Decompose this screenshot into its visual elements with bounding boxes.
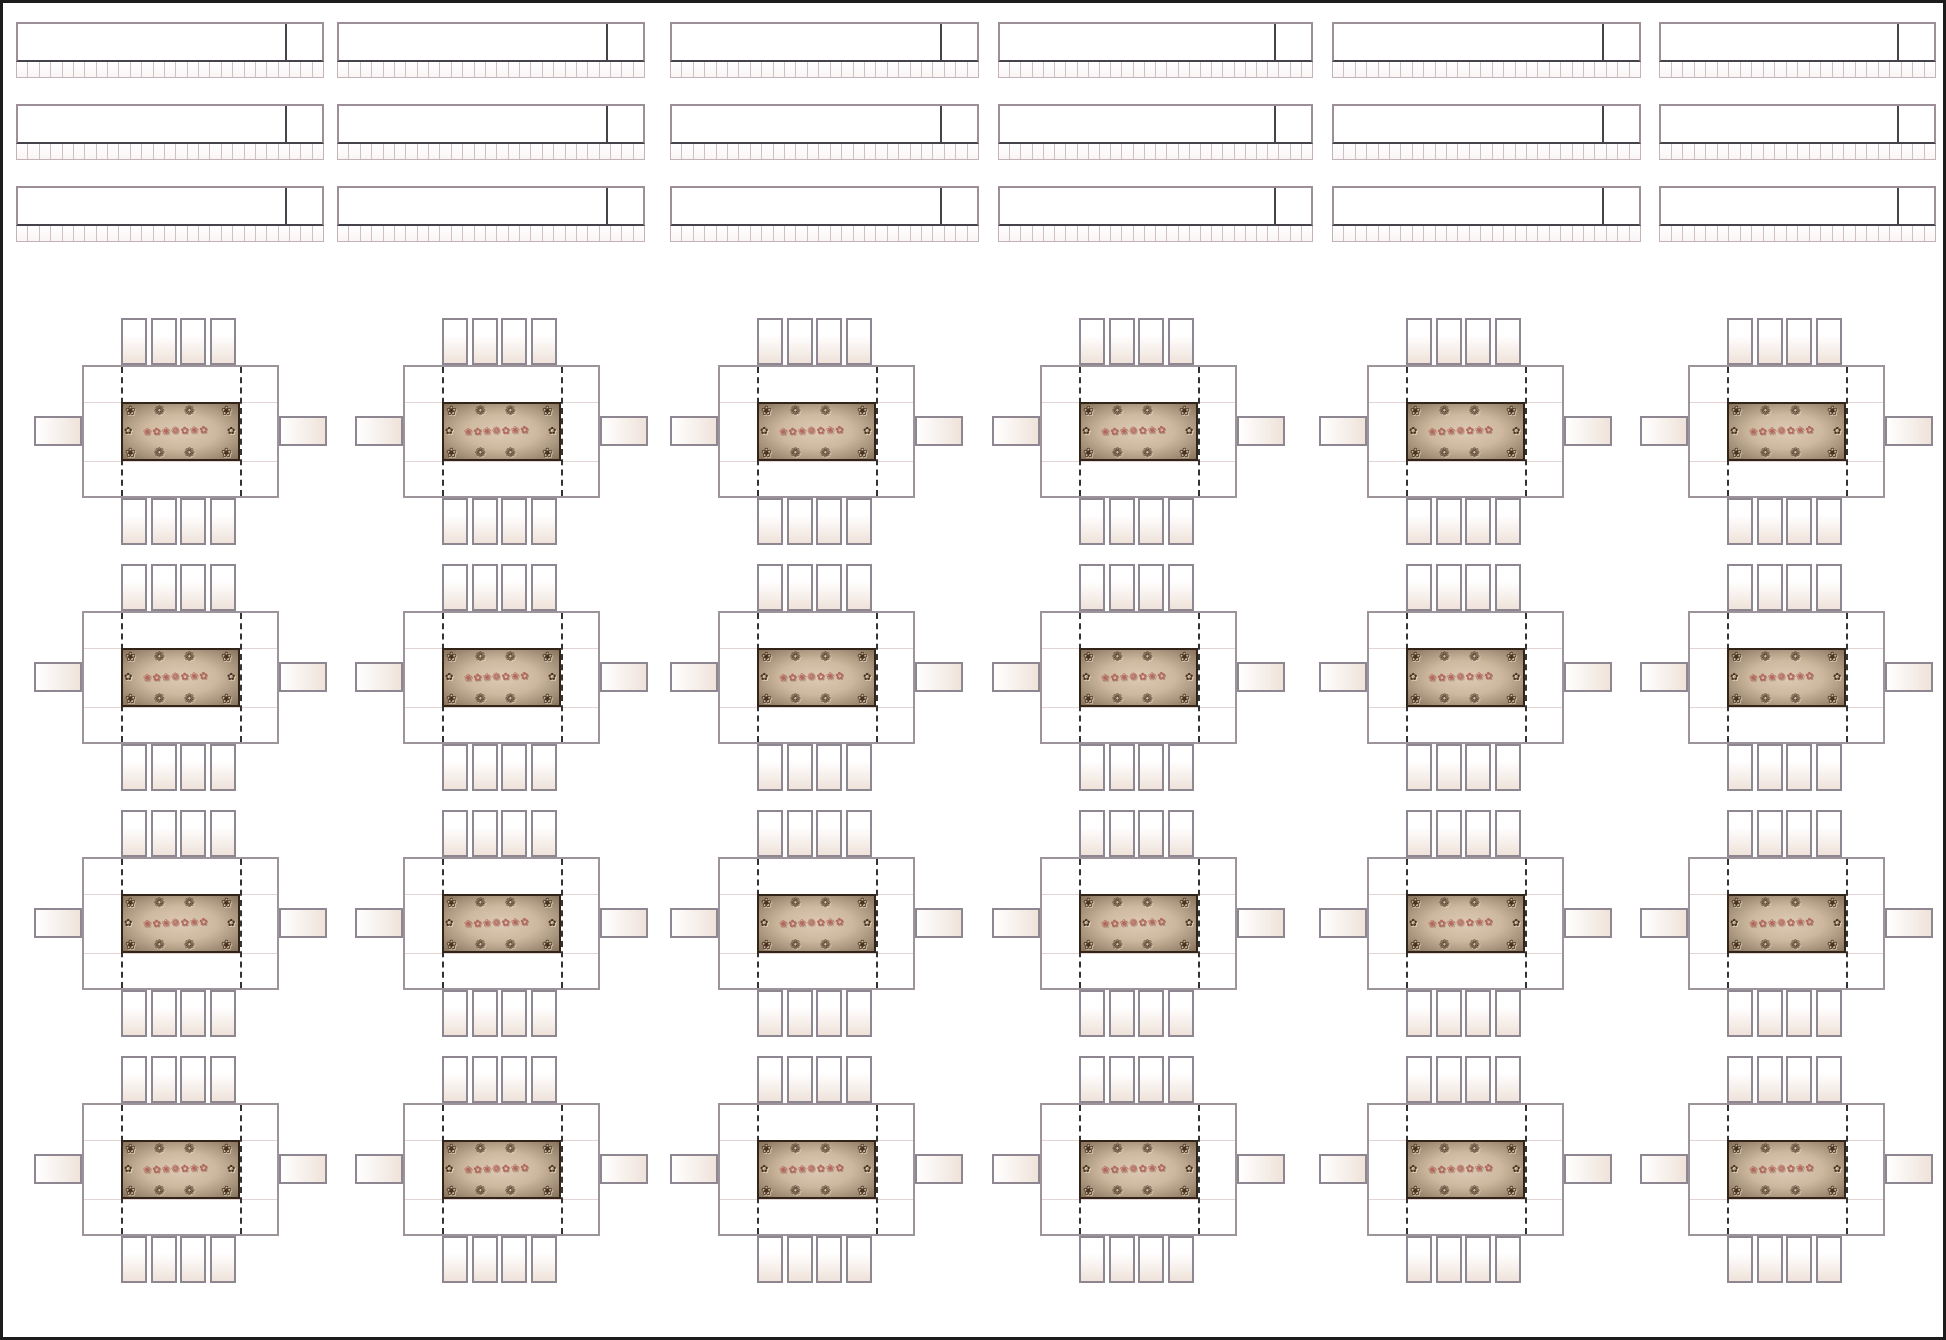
flower-ornament-icon: ❀ <box>125 939 136 952</box>
banquet-seat <box>199 62 210 77</box>
chair-top <box>1465 318 1491 365</box>
flower-ornament-icon: ✿ <box>124 427 132 437</box>
flower-ornament-icon: ❁ <box>790 405 801 418</box>
banquet-seat <box>1527 62 1538 77</box>
banquet-end-section <box>606 188 608 224</box>
flower-ornament-icon: ✿ <box>1833 673 1841 683</box>
banquet-seat <box>1595 62 1606 77</box>
chair-bottom <box>531 1236 557 1283</box>
chair-right <box>1237 416 1285 446</box>
banquet-seat <box>922 62 933 77</box>
banquet-seat <box>384 62 395 77</box>
dining-table-group: ❀❀❁❁❁❁❀❀✿✿❀✿❀❁✿❀✿ <box>1319 1056 1612 1283</box>
flower-ornament-icon: ❀ <box>542 897 553 910</box>
tablecloth-fold-line <box>405 1199 598 1200</box>
banquet-seat <box>475 144 486 159</box>
tablecloth-fold-line <box>1042 1199 1235 1200</box>
banquet-seat <box>1810 62 1822 77</box>
banquet-seat <box>1844 62 1856 77</box>
banquet-seat <box>1089 144 1100 159</box>
chair-right <box>915 416 963 446</box>
flower-ornament-icon: ❁ <box>184 693 195 706</box>
flower-ornament-icon: ❁ <box>1760 897 1771 910</box>
chair-right <box>600 1154 648 1184</box>
flower-ornament-icon: ❁ <box>1760 651 1771 664</box>
banquet-end-section <box>1897 24 1899 60</box>
flower-ornament-icon: ❁ <box>1439 693 1450 706</box>
banquet-seat <box>1390 144 1401 159</box>
banquet-seat <box>74 62 85 77</box>
chair-right <box>279 662 327 692</box>
banquet-seat <box>74 226 85 241</box>
tablecloth-fold-line <box>1369 1199 1562 1200</box>
chair-top <box>531 564 557 611</box>
flower-ornament-icon: ❁ <box>1790 405 1801 418</box>
banquet-seat <box>520 144 531 159</box>
banquet-seat <box>313 144 323 159</box>
banquet-seat <box>1775 226 1787 241</box>
chair-bottom <box>1168 1236 1194 1283</box>
banquet-seat <box>1504 62 1515 77</box>
floral-table-runner: ❀❀❁❁❁❁❀❀✿✿❀✿❀❁✿❀✿ <box>442 894 561 953</box>
banquet-seat <box>1798 226 1810 241</box>
banquet-seat <box>600 62 611 77</box>
flower-ornament-icon: ❀ <box>1506 1143 1517 1156</box>
chair-top <box>1406 1056 1432 1103</box>
flower-ornament-icon: ❁ <box>184 651 195 664</box>
flower-ornament-icon: ✿ <box>445 1165 453 1175</box>
chair-left <box>1319 662 1367 692</box>
banquet-seat <box>97 62 108 77</box>
banquet-seat <box>1458 144 1469 159</box>
flower-ornament-icon: ✿ <box>1185 427 1193 437</box>
banquet-seat <box>1493 226 1504 241</box>
chair-bottom <box>531 990 557 1037</box>
flower-ornament-icon: ✿ <box>1082 1165 1090 1175</box>
banquet-table-surface <box>670 22 979 62</box>
flower-ornament-icon: ❀ <box>1410 939 1421 952</box>
banquet-seat <box>440 226 451 241</box>
banquet-table <box>337 104 645 160</box>
banquet-seat <box>1821 62 1833 77</box>
banquet-seat <box>1821 226 1833 241</box>
banquet-seat <box>1706 144 1718 159</box>
tablecloth-fold-line <box>1690 1199 1883 1200</box>
banquet-seat <box>176 144 187 159</box>
flower-ornament-icon: ❁ <box>475 651 486 664</box>
chair-right <box>1885 662 1933 692</box>
banquet-seat <box>634 62 644 77</box>
banquet-seat <box>1573 62 1584 77</box>
banquet-seat <box>1913 144 1925 159</box>
dining-table-group: ❀❀❁❁❁❁❀❀✿✿❀✿❀❁✿❀✿ <box>34 318 327 545</box>
banquet-seat <box>1279 226 1290 241</box>
flower-ornament-icon: ❀ <box>1410 447 1421 460</box>
flower-ornament-icon: ✿ <box>863 673 871 683</box>
chair-top <box>787 810 813 857</box>
tablecloth-fold-dashed-line <box>1846 859 1848 988</box>
table-surface: ❀❀❁❁❁❁❀❀✿✿❀✿❀❁✿❀✿ <box>1688 1103 1885 1236</box>
chair-bottom <box>151 990 177 1037</box>
flower-ornament-icon: ❁ <box>475 939 486 952</box>
floral-table-runner: ❀❀❁❁❁❁❀❀✿✿❀✿❀❁✿❀✿ <box>1406 648 1525 707</box>
flower-ornament-icon: ❀ <box>221 897 232 910</box>
chair-top <box>846 810 872 857</box>
chair-top <box>1786 810 1812 857</box>
banquet-seat <box>1821 144 1833 159</box>
flower-ornament-icon: ❀ <box>1410 1185 1421 1198</box>
banquet-seat <box>1379 226 1390 241</box>
flower-ornament-icon: ❀ <box>761 939 772 952</box>
chair-bottom <box>1436 1236 1462 1283</box>
banquet-seat <box>1618 144 1629 159</box>
dining-table-group: ❀❀❁❁❁❁❀❀✿✿❀✿❀❁✿❀✿ <box>1640 318 1933 545</box>
chair-top <box>180 318 206 365</box>
chair-top <box>210 1056 236 1103</box>
flower-ornament-icon: ❀ <box>1506 939 1517 952</box>
banquet-seat <box>1367 144 1378 159</box>
chair-top <box>1727 1056 1753 1103</box>
banquet-seat <box>1078 226 1089 241</box>
flower-ornament-icon: ❁ <box>184 897 195 910</box>
banquet-seat <box>999 62 1010 77</box>
banquet-seat <box>1367 62 1378 77</box>
flower-ornament-icon: ❀ <box>446 693 457 706</box>
flower-ornament-icon: ❁ <box>1469 897 1480 910</box>
flower-ornament-icon: ❀ <box>1731 939 1742 952</box>
flower-ornament-icon: ❀ <box>761 447 772 460</box>
flower-ornament-icon: ❀ <box>857 939 868 952</box>
chair-right <box>915 1154 963 1184</box>
banquet-seat <box>865 62 876 77</box>
banquet-seat <box>1344 226 1355 241</box>
flower-ornament-icon: ❁ <box>154 1185 165 1198</box>
flower-ornament-icon: ❁ <box>820 1143 831 1156</box>
dining-table-group: ❀❀❁❁❁❁❀❀✿✿❀✿❀❁✿❀✿ <box>1319 318 1612 545</box>
chair-top <box>1727 318 1753 365</box>
banquet-seat <box>395 62 406 77</box>
flower-ornament-icon: ❀ <box>1827 405 1838 418</box>
flower-ornament-icon: ❁ <box>184 939 195 952</box>
table-surface: ❀❀❁❁❁❁❀❀✿✿❀✿❀❁✿❀✿ <box>718 611 915 744</box>
flower-ornament-icon: ❁ <box>1439 447 1450 460</box>
flower-ornament-icon: ✿ <box>1730 919 1738 929</box>
flower-ornament-icon: ✿ <box>227 919 235 929</box>
banquet-seat <box>1122 144 1133 159</box>
chair-top <box>816 1056 842 1103</box>
banquet-seat <box>384 144 395 159</box>
banquet-seat <box>509 226 520 241</box>
banquet-seat <box>1902 144 1914 159</box>
banquet-seat <box>554 226 565 241</box>
banquet-seat <box>1833 62 1845 77</box>
banquet-seat <box>1291 226 1302 241</box>
banquet-seat <box>1033 144 1044 159</box>
banquet-seat <box>154 226 165 241</box>
flower-ornament-icon: ❁ <box>1790 447 1801 460</box>
chair-top <box>1727 564 1753 611</box>
flower-ornament-icon: ❀ <box>1827 1185 1838 1198</box>
chair-bottom <box>1079 744 1105 791</box>
flower-ornament-icon: ❁ <box>505 1185 516 1198</box>
flower-ornament-icon: ❁ <box>154 939 165 952</box>
dining-table-group: ❀❀❁❁❁❁❀❀✿✿❀✿❀❁✿❀✿ <box>670 564 963 791</box>
banquet-seat <box>1752 226 1764 241</box>
chair-top <box>1436 810 1462 857</box>
chair-bottom <box>1109 990 1135 1037</box>
flower-ornament-icon: ❁ <box>1112 1143 1123 1156</box>
flower-ornament-icon: ❁ <box>1439 651 1450 664</box>
banquet-seat <box>119 226 130 241</box>
banquet-seat <box>108 226 119 241</box>
banquet-seat <box>1055 144 1066 159</box>
chair-bottom <box>501 990 527 1037</box>
rose-garland-icon: ❀✿❀❁✿❀✿ <box>143 672 209 684</box>
flower-ornament-icon: ❁ <box>1142 651 1153 664</box>
banquet-seat-strip <box>998 226 1313 242</box>
chair-left <box>670 1154 718 1184</box>
chair-top <box>1436 1056 1462 1103</box>
flower-ornament-icon: ❁ <box>1112 939 1123 952</box>
banquet-seat <box>1595 226 1606 241</box>
flower-ornament-icon: ❀ <box>125 447 136 460</box>
banquet-seat <box>1134 62 1145 77</box>
chair-top <box>1436 318 1462 365</box>
banquet-seat <box>1235 226 1246 241</box>
tablecloth-fold-line <box>1690 461 1883 462</box>
flower-ornament-icon: ❀ <box>446 405 457 418</box>
chair-left <box>992 662 1040 692</box>
dining-table-group: ❀❀❁❁❁❁❀❀✿✿❀✿❀❁✿❀✿ <box>670 1056 963 1283</box>
rose-garland-icon: ❀✿❀❁✿❀✿ <box>143 1164 209 1176</box>
banquet-seat <box>1291 144 1302 159</box>
chair-top <box>816 564 842 611</box>
chair-bottom <box>1495 498 1521 545</box>
banquet-seat <box>634 226 644 241</box>
banquet-seat <box>1538 62 1549 77</box>
banquet-seat <box>1257 62 1268 77</box>
dining-table-group: ❀❀❁❁❁❁❀❀✿✿❀✿❀❁✿❀✿ <box>355 564 648 791</box>
chair-bottom <box>1786 744 1812 791</box>
chair-bottom <box>1079 498 1105 545</box>
flower-ornament-icon: ✿ <box>1185 673 1193 683</box>
banquet-seat <box>1856 62 1868 77</box>
banquet-seat <box>728 62 739 77</box>
chair-bottom <box>121 1236 147 1283</box>
banquet-seat <box>1257 226 1268 241</box>
banquet-seat <box>1764 144 1776 159</box>
floral-table-runner: ❀❀❁❁❁❁❀❀✿✿❀✿❀❁✿❀✿ <box>121 1140 240 1199</box>
banquet-seat <box>751 62 762 77</box>
banquet-seat <box>865 144 876 159</box>
banquet-seat <box>199 226 210 241</box>
tablecloth-fold-dashed-line <box>1525 1105 1527 1234</box>
banquet-seat <box>165 226 176 241</box>
banquet-seat <box>384 226 395 241</box>
banquet-seat <box>911 226 922 241</box>
banquet-seat <box>338 226 349 241</box>
chair-bottom <box>1436 744 1462 791</box>
chair-top <box>1757 564 1783 611</box>
chair-top <box>1109 318 1135 365</box>
flower-ornament-icon: ❁ <box>1760 447 1771 460</box>
chair-top <box>1495 1056 1521 1103</box>
flower-ornament-icon: ❀ <box>446 939 457 952</box>
banquet-seat <box>1447 226 1458 241</box>
flower-ornament-icon: ✿ <box>1409 673 1417 683</box>
chair-bottom <box>757 744 783 791</box>
banquet-seat <box>945 226 956 241</box>
chair-left <box>670 416 718 446</box>
flower-ornament-icon: ✿ <box>1512 673 1520 683</box>
banquet-seat <box>142 62 153 77</box>
banquet-seat <box>131 144 142 159</box>
banquet-seat <box>1246 226 1257 241</box>
chair-top <box>1406 810 1432 857</box>
flower-ornament-icon: ❁ <box>1142 897 1153 910</box>
banquet-seat <box>1179 144 1190 159</box>
floral-table-runner: ❀❀❁❁❁❁❀❀✿✿❀✿❀❁✿❀✿ <box>442 402 561 461</box>
banquet-seat <box>682 144 693 159</box>
banquet-seat <box>1291 62 1302 77</box>
tablecloth-fold-dashed-line <box>240 859 242 988</box>
flower-ornament-icon: ❀ <box>1179 693 1190 706</box>
banquet-seat <box>1156 144 1167 159</box>
banquet-seat <box>1356 62 1367 77</box>
flower-ornament-icon: ❀ <box>1731 651 1742 664</box>
flower-ornament-icon: ✿ <box>1082 427 1090 437</box>
floral-table-runner: ❀❀❁❁❁❁❀❀✿✿❀✿❀❁✿❀✿ <box>442 648 561 707</box>
chair-bottom <box>757 1236 783 1283</box>
rose-garland-icon: ❀✿❀❁✿❀✿ <box>143 918 209 930</box>
chair-top <box>210 810 236 857</box>
banquet-seat <box>751 144 762 159</box>
banquet-table-surface <box>998 104 1313 144</box>
chair-right <box>915 908 963 938</box>
rose-garland-icon: ❀✿❀❁✿❀✿ <box>779 426 845 438</box>
flower-ornament-icon: ❀ <box>761 897 772 910</box>
banquet-seat <box>945 62 956 77</box>
banquet-seat <box>1538 144 1549 159</box>
flower-ornament-icon: ❀ <box>1827 447 1838 460</box>
floral-table-runner: ❀❀❁❁❁❁❀❀✿✿❀✿❀❁✿❀✿ <box>1727 402 1846 461</box>
banquet-seat <box>279 226 290 241</box>
banquet-seat <box>1618 226 1629 241</box>
banquet-seat <box>372 144 383 159</box>
chair-top <box>151 810 177 857</box>
flower-ornament-icon: ✿ <box>1512 427 1520 437</box>
chair-bottom <box>1168 498 1194 545</box>
flower-ornament-icon: ❀ <box>761 405 772 418</box>
banquet-seat <box>1787 62 1799 77</box>
banquet-seat <box>1111 144 1122 159</box>
tablecloth-fold-dashed-line <box>1525 613 1527 742</box>
chair-bottom <box>1109 744 1135 791</box>
banquet-seat <box>1683 226 1695 241</box>
chair-right <box>1885 416 1933 446</box>
banquet-seat <box>1401 62 1412 77</box>
chair-top <box>787 1056 813 1103</box>
chair-bottom <box>1816 990 1842 1037</box>
banquet-table <box>1659 186 1936 242</box>
tablecloth-fold-line <box>1042 707 1235 708</box>
chair-bottom <box>151 498 177 545</box>
chair-top <box>1816 564 1842 611</box>
banquet-table-surface <box>337 104 645 144</box>
table-surface: ❀❀❁❁❁❁❀❀✿✿❀✿❀❁✿❀✿ <box>718 365 915 498</box>
banquet-seat <box>1584 226 1595 241</box>
tablecloth-fold-dashed-line <box>561 859 563 988</box>
chair-bottom <box>1757 990 1783 1037</box>
flower-ornament-icon: ❁ <box>1469 693 1480 706</box>
banquet-seat <box>338 144 349 159</box>
chair-top <box>1079 810 1105 857</box>
banquet-seat <box>1741 144 1753 159</box>
chair-top <box>1138 1056 1164 1103</box>
banquet-table <box>998 186 1313 242</box>
banquet-table <box>670 186 979 242</box>
banquet-seat <box>566 226 577 241</box>
chair-top <box>1079 318 1105 365</box>
banquet-seat <box>1879 62 1891 77</box>
banquet-seat-strip <box>16 144 324 160</box>
floral-table-runner: ❀❀❁❁❁❁❀❀✿✿❀✿❀❁✿❀✿ <box>442 1140 561 1199</box>
banquet-seat <box>475 62 486 77</box>
banquet-seat <box>1844 144 1856 159</box>
banquet-seat <box>142 144 153 159</box>
tablecloth-fold-line <box>720 707 913 708</box>
flower-ornament-icon: ❁ <box>154 405 165 418</box>
flower-ornament-icon: ✿ <box>863 427 871 437</box>
table-surface: ❀❀❁❁❁❁❀❀✿✿❀✿❀❁✿❀✿ <box>1040 611 1237 744</box>
banquet-seat <box>588 226 599 241</box>
banquet-seat <box>1078 62 1089 77</box>
flower-ornament-icon: ❀ <box>1179 1143 1190 1156</box>
banquet-seat <box>911 62 922 77</box>
chair-bottom <box>121 990 147 1037</box>
banquet-seat <box>968 144 978 159</box>
banquet-seat <box>1527 144 1538 159</box>
chair-bottom <box>180 498 206 545</box>
tablecloth-fold-dashed-line <box>1525 367 1527 496</box>
flower-ornament-icon: ❀ <box>446 897 457 910</box>
floral-table-runner: ❀❀❁❁❁❁❀❀✿✿❀✿❀❁✿❀✿ <box>757 1140 876 1199</box>
banquet-seat <box>1764 226 1776 241</box>
banquet-seat <box>1201 226 1212 241</box>
banquet-table <box>670 104 979 160</box>
banquet-seat <box>600 226 611 241</box>
chair-bottom <box>151 1236 177 1283</box>
chair-bottom <box>1406 744 1432 791</box>
banquet-seat <box>1044 226 1055 241</box>
banquet-seat <box>313 62 323 77</box>
banquet-seat <box>1481 62 1492 77</box>
chair-top <box>1495 564 1521 611</box>
banquet-seat <box>1695 226 1707 241</box>
chair-bottom <box>1436 498 1462 545</box>
rose-garland-icon: ❀✿❀❁✿❀✿ <box>1428 918 1494 930</box>
banquet-seat <box>1729 226 1741 241</box>
banquet-table-surface <box>16 186 324 226</box>
flower-ornament-icon: ❀ <box>125 651 136 664</box>
chair-top <box>210 318 236 365</box>
chair-left <box>34 662 82 692</box>
banquet-seat <box>1436 62 1447 77</box>
dining-table-group: ❀❀❁❁❁❁❀❀✿✿❀✿❀❁✿❀✿ <box>670 318 963 545</box>
banquet-seat <box>1413 226 1424 241</box>
banquet-table-surface <box>1332 22 1641 62</box>
banquet-seat <box>1458 62 1469 77</box>
